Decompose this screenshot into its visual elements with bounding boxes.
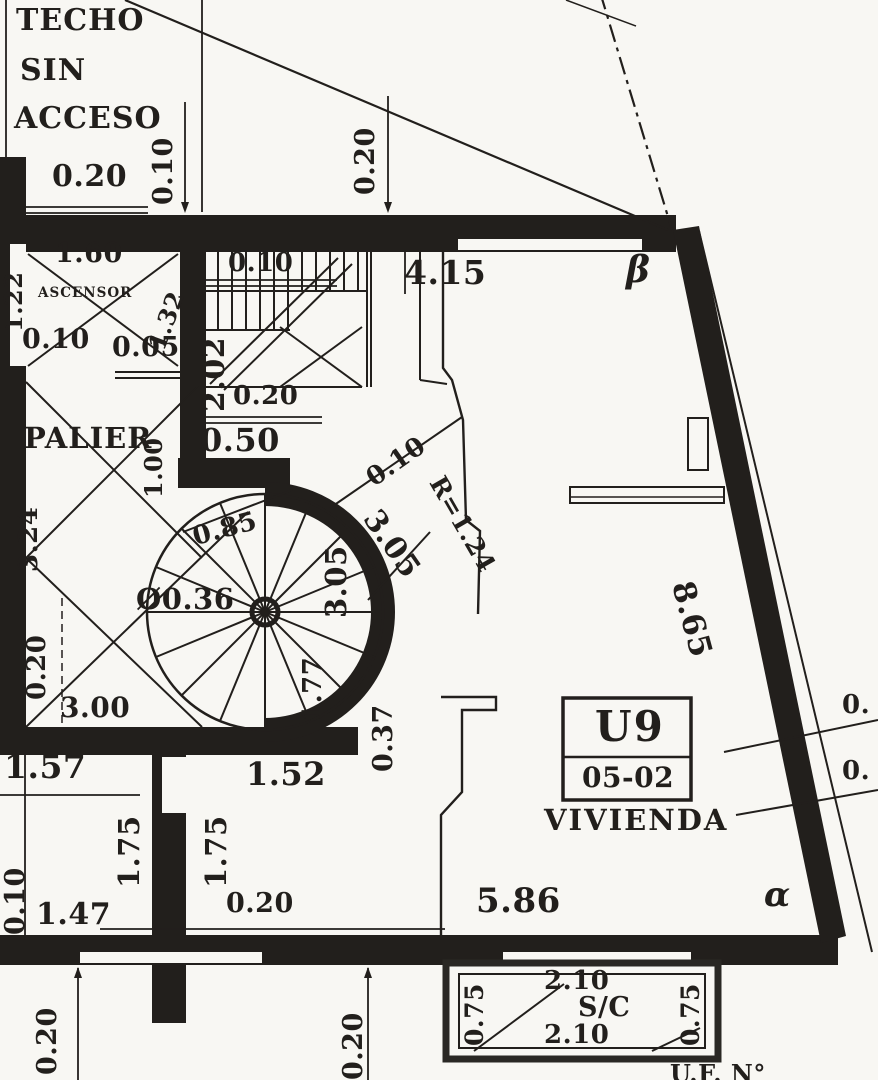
dim-spiral-diameter: Ø0.36 bbox=[136, 585, 234, 614]
room-label-palier: PALIER bbox=[24, 424, 152, 453]
dim-bl-175a: 1.75 bbox=[115, 815, 144, 888]
floorplan-scan: TECHO SIN ACCESO 0.20 0.10 0.20 4.15 β 1… bbox=[0, 0, 878, 1080]
dim-elev-160: 1.60 bbox=[55, 240, 123, 267]
room-label-ascensor: ASCENSOR bbox=[38, 287, 132, 301]
dim-spiral-177: 1.77 bbox=[300, 657, 326, 722]
dim-bot-020a: 0.20 bbox=[34, 1007, 61, 1075]
corner-beta: β bbox=[626, 252, 650, 288]
dim-roof-020: 0.20 bbox=[52, 162, 127, 192]
dim-balc-210-bottom: 2.10 bbox=[544, 1022, 609, 1048]
dim-stair-010: 0.10 bbox=[228, 250, 293, 276]
dim-balc-075-right: 0.75 bbox=[678, 983, 703, 1046]
dim-stair-050: 0.50 bbox=[200, 424, 280, 456]
dim-spiral-037: 0.37 bbox=[370, 704, 397, 772]
dim-bot-586: 5.86 bbox=[476, 884, 561, 918]
dim-top-020: 0.20 bbox=[352, 127, 379, 195]
dim-bot-010: 0.10 bbox=[2, 867, 29, 935]
dim-elev-122: 1.22 bbox=[2, 272, 26, 332]
dim-elev-005: 0.05 bbox=[112, 334, 180, 361]
roof-note-line1: TECHO bbox=[16, 6, 145, 36]
dim-palier-324: 3.24 bbox=[16, 507, 42, 572]
dim-palier-300: 3.00 bbox=[60, 694, 130, 722]
corner-alpha: α bbox=[764, 878, 791, 912]
dim-stair-202: 2.02 bbox=[200, 337, 230, 412]
unit-code: 05-02 bbox=[582, 764, 674, 792]
room-label-sc: S/C bbox=[578, 994, 630, 1021]
roof-note-line3: ACCESO bbox=[14, 104, 162, 134]
roof-note-line2: SIN bbox=[20, 56, 86, 86]
dim-stair-020: 0.20 bbox=[233, 383, 298, 409]
dim-top-415: 4.15 bbox=[404, 256, 486, 289]
dim-bl-152: 1.52 bbox=[246, 758, 326, 790]
dim-balc-075-left: 0.75 bbox=[462, 983, 487, 1046]
uf-partial-text: U.F. N° bbox=[670, 1062, 766, 1080]
dim-right-cut-b: 0. bbox=[842, 758, 870, 784]
dim-roof-010: 0.10 bbox=[150, 137, 177, 205]
dim-bot-147: 1.47 bbox=[36, 900, 111, 930]
room-label-vivienda: VIVIENDA bbox=[544, 806, 728, 835]
floorplan-linework bbox=[0, 0, 878, 1080]
dim-spiral-305-inner: 3.05 bbox=[322, 545, 351, 618]
dim-palier-020: 0.20 bbox=[24, 635, 50, 700]
dim-right-cut-a: 0. bbox=[842, 692, 870, 718]
dim-bl-020-room: 0.20 bbox=[226, 890, 294, 917]
dim-balc-210-top: 2.10 bbox=[544, 968, 609, 994]
unit-id: U9 bbox=[595, 706, 665, 748]
dim-bl-157: 1.57 bbox=[4, 750, 86, 783]
dim-elev-010: 0.10 bbox=[22, 326, 90, 353]
dim-bl-175b: 1.75 bbox=[202, 815, 231, 888]
dim-bot-020b: 0.20 bbox=[340, 1012, 367, 1080]
dim-palier-100: 1.00 bbox=[142, 438, 166, 498]
